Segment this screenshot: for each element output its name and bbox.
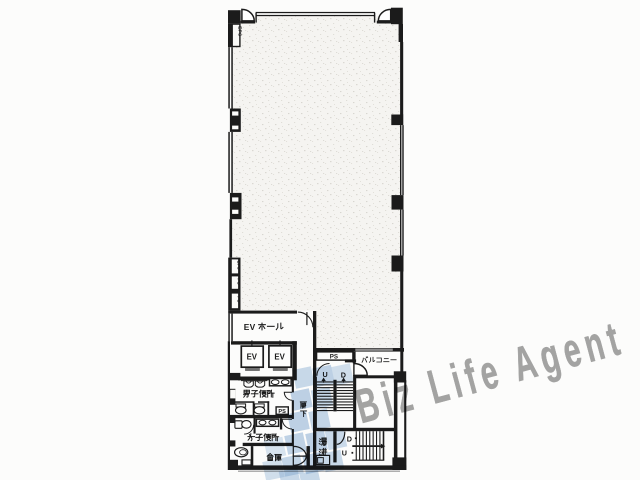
svg-text:PS: PS [236,278,241,285]
svg-text:EPS: EPS [236,261,241,270]
svg-text:D: D [347,435,352,444]
svg-text:PS: PS [236,296,241,303]
svg-text:PS: PS [330,354,338,361]
svg-text:EV: EV [274,352,285,361]
svg-text:U: U [342,449,347,458]
svg-text:EV: EV [247,353,258,362]
svg-text:EV: EV [244,322,256,332]
svg-text:EPS: EPS [238,26,243,36]
svg-text:PS: PS [278,409,286,415]
